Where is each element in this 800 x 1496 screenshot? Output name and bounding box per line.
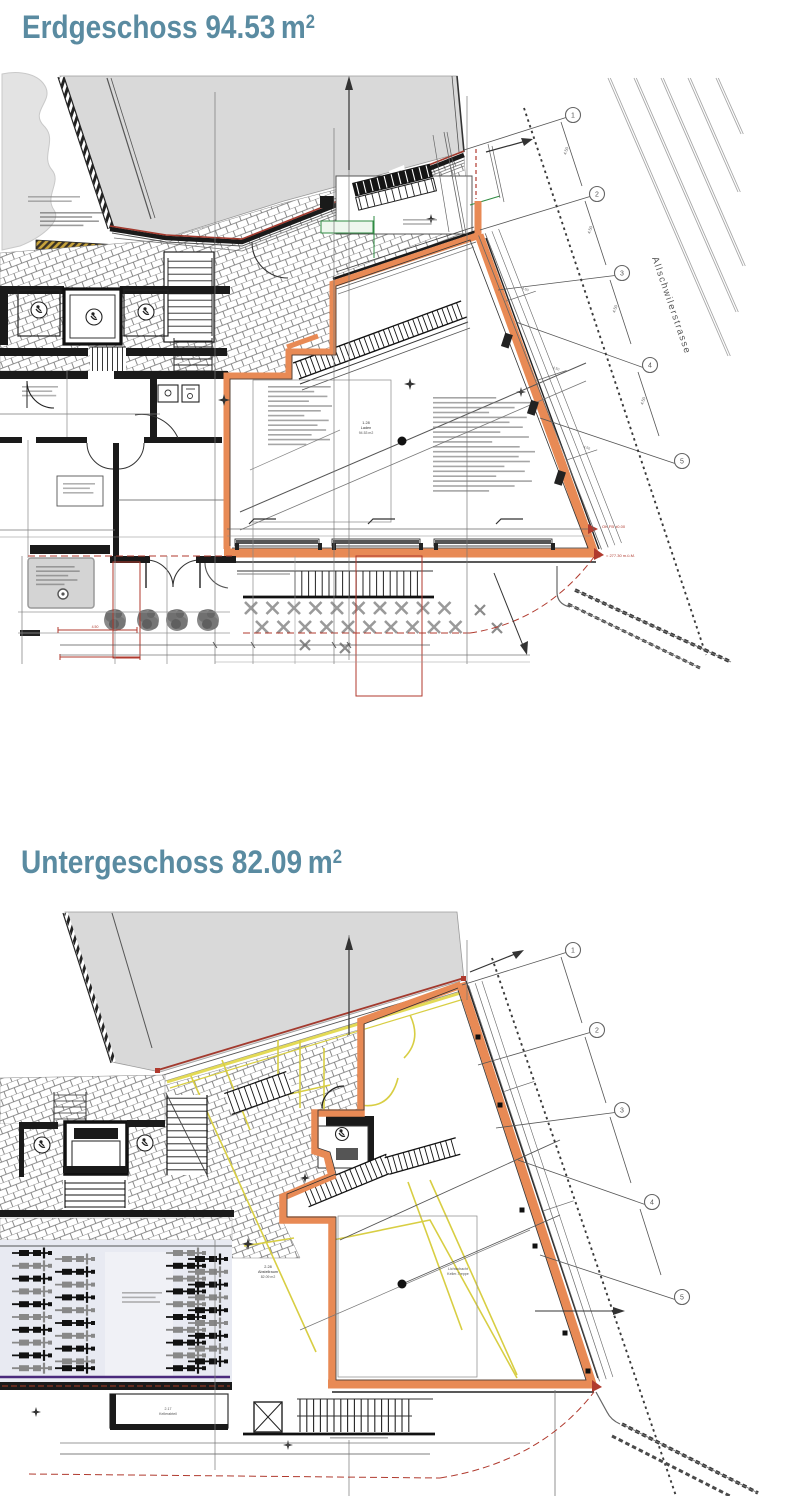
svg-text:Abstellraum: Abstellraum [258,1270,278,1274]
svg-text:Laden: Laden [361,426,372,430]
svg-text:82.09 m2: 82.09 m2 [261,1275,276,1279]
svg-text:OK FB ±0.00: OK FB ±0.00 [602,524,626,529]
svg-text:2.17: 2.17 [165,1407,172,1411]
svg-text:4.50: 4.50 [92,625,99,629]
svg-text:4: 4 [650,1200,654,1207]
svg-text:Erdgeschoss 94.53 m2: Erdgeschoss 94.53 m2 [22,9,315,45]
svg-text:1: 1 [571,948,575,955]
svg-text:Untergeschoss 82.09 m2: Untergeschoss 82.09 m2 [21,844,342,880]
svg-text:3: 3 [620,1108,624,1115]
svg-text:3: 3 [620,271,624,278]
svg-text:94.53 m2: 94.53 m2 [359,431,374,435]
svg-text:1.28: 1.28 [362,421,369,425]
svg-text:5: 5 [680,459,684,466]
svg-text:2: 2 [595,192,599,199]
svg-text:Lichtschacht: Lichtschacht [448,1267,468,1271]
svg-text:4: 4 [648,363,652,370]
svg-text:1: 1 [571,113,575,120]
svg-text:2: 2 [595,1028,599,1035]
svg-text:2.28: 2.28 [264,1265,271,1269]
svg-text:5: 5 [680,1295,684,1302]
svg-text:Keller-Treppe: Keller-Treppe [447,1272,469,1276]
svg-text:Kellerabteil: Kellerabteil [159,1412,177,1416]
svg-text:= 277.30 m.ü.M.: = 277.30 m.ü.M. [606,553,635,558]
